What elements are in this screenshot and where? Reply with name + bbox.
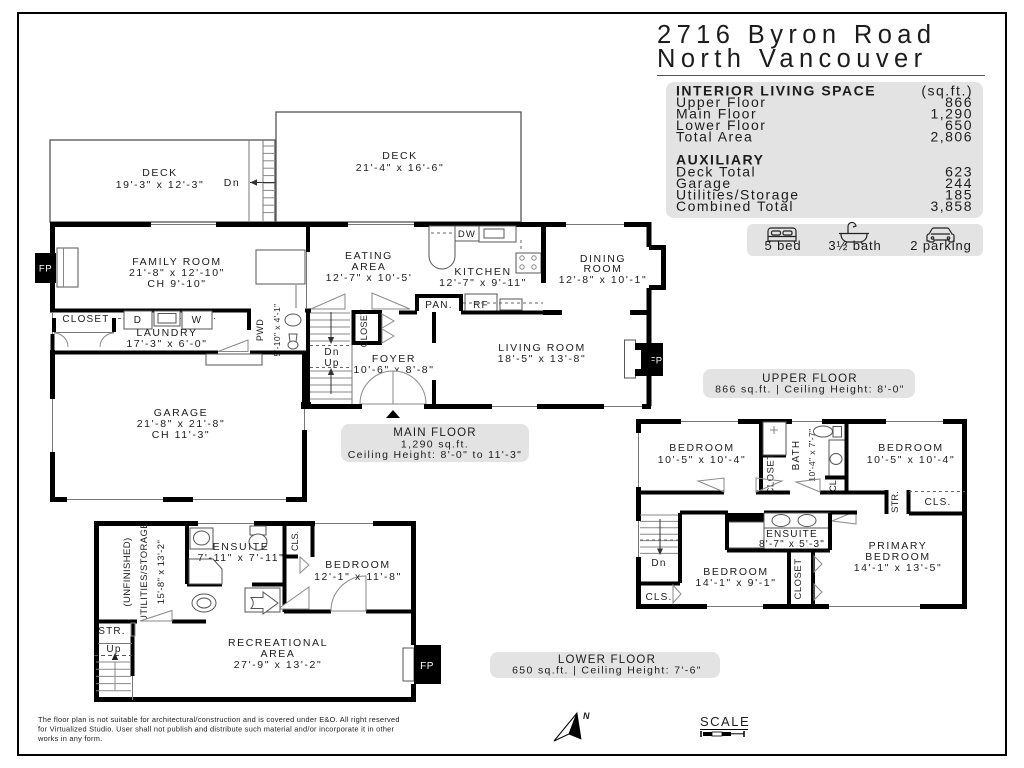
- svg-text:for Virtualized Studio. User s: for Virtualized Studio. User shall not p…: [38, 725, 395, 734]
- svg-text:12'-7" x 10'-5': 12'-7" x 10'-5': [326, 272, 413, 284]
- svg-text:The floor plan is not suitable: The floor plan is not suitable for archi…: [38, 715, 400, 724]
- svg-text:works in any form.: works in any form.: [37, 734, 102, 743]
- svg-text:CH 11'-3": CH 11'-3": [152, 429, 210, 441]
- svg-text:DW: DW: [458, 229, 476, 240]
- svg-text:866 sq.ft. | Ceiling Height: 8: 866 sq.ft. | Ceiling Height: 8'-0": [715, 384, 905, 396]
- svg-text:STR.: STR.: [98, 626, 126, 637]
- svg-text:STR.: STR.: [890, 491, 901, 513]
- svg-text:DECK: DECK: [382, 150, 418, 162]
- svg-text:DECK: DECK: [142, 167, 178, 179]
- svg-text:15'-8" x 13'-2": 15'-8" x 13'-2": [156, 540, 167, 604]
- svg-text:(UNFINISHED): (UNFINISHED): [122, 537, 133, 606]
- svg-text:RF: RF: [473, 300, 489, 311]
- svg-text:Total Area: Total Area: [676, 129, 753, 145]
- svg-text:3½ bath: 3½ bath: [828, 238, 881, 253]
- svg-text:10'-5" x 10'-4": 10'-5" x 10'-4": [867, 454, 956, 466]
- svg-text:BEDROOM: BEDROOM: [878, 442, 943, 454]
- svg-text:12'-8" x 10'-1": 12'-8" x 10'-1": [559, 274, 648, 286]
- svg-text:North Vancouver: North Vancouver: [657, 45, 927, 73]
- svg-text:Dn: Dn: [224, 177, 241, 189]
- svg-text:D: D: [134, 315, 142, 326]
- svg-text:18'-5" x 13'-8": 18'-5" x 13'-8": [498, 353, 587, 365]
- svg-text:FP: FP: [39, 264, 52, 275]
- svg-text:2,806: 2,806: [930, 129, 973, 145]
- svg-text:BEDROOM: BEDROOM: [325, 559, 390, 571]
- svg-text:CLOSET: CLOSET: [62, 314, 109, 325]
- svg-text:MAIN FLOOR: MAIN FLOOR: [393, 427, 477, 439]
- svg-text:12'-7" x 9'-11": 12'-7" x 9'-11": [439, 277, 527, 289]
- svg-text:FP: FP: [420, 661, 434, 672]
- svg-text:CL: CL: [828, 480, 838, 492]
- svg-text:21'-4" x 16'-6": 21'-4" x 16'-6": [356, 162, 445, 174]
- svg-text:SCALE: SCALE: [700, 714, 750, 729]
- svg-text:650 sq.ft. | Ceiling Height: 7: 650 sq.ft. | Ceiling Height: 7'-6": [512, 665, 702, 677]
- svg-text:Up: Up: [106, 644, 121, 655]
- svg-text:2 parking: 2 parking: [910, 238, 972, 253]
- svg-text:Dn: Dn: [651, 558, 666, 569]
- svg-text:8'-7" x 5'-3": 8'-7" x 5'-3": [759, 539, 825, 550]
- svg-text:Dn: Dn: [324, 347, 339, 358]
- svg-text:CLOSET: CLOSET: [766, 453, 777, 494]
- svg-text:14'-1" x 9'-1": 14'-1" x 9'-1": [695, 577, 776, 589]
- svg-text:12'-1" x 11'-8": 12'-1" x 11'-8": [314, 571, 402, 583]
- svg-text:Combined Total: Combined Total: [676, 198, 794, 214]
- svg-text:10'-5" x 10'-4": 10'-5" x 10'-4": [658, 454, 747, 466]
- svg-text:BATH: BATH: [791, 440, 802, 471]
- svg-text:N: N: [583, 711, 590, 721]
- svg-text:CLS.: CLS.: [290, 531, 300, 551]
- svg-text:27'-9" x 13'-2": 27'-9" x 13'-2": [234, 659, 323, 671]
- svg-text:W: W: [192, 315, 203, 326]
- svg-text:CLS.: CLS.: [645, 592, 672, 603]
- svg-text:Up: Up: [324, 358, 339, 369]
- svg-text:CH 9'-10": CH 9'-10": [147, 278, 206, 290]
- svg-text:UTILITIES/STORAGE: UTILITIES/STORAGE: [139, 522, 150, 622]
- svg-text:7'-11" x 7'-11": 7'-11" x 7'-11": [197, 552, 284, 564]
- svg-text:19'-3" x 12'-3": 19'-3" x 12'-3": [116, 179, 205, 191]
- svg-text:CLOSET: CLOSET: [359, 309, 369, 348]
- svg-text:5'-10" x 4'-1": 5'-10" x 4'-1": [272, 303, 282, 356]
- svg-text:CLOSET: CLOSET: [793, 558, 804, 599]
- svg-text:BEDROOM: BEDROOM: [669, 442, 734, 454]
- svg-text:3,858: 3,858: [930, 198, 973, 214]
- svg-text:PWD: PWD: [255, 319, 265, 341]
- svg-text:5 bed: 5 bed: [764, 238, 801, 253]
- svg-text:CLS.: CLS.: [924, 497, 951, 508]
- svg-text:10'-4" x 7'-7": 10'-4" x 7'-7": [807, 428, 817, 481]
- svg-text:PAN.: PAN.: [425, 300, 452, 311]
- svg-text:14'-1" x 13'-5": 14'-1" x 13'-5": [854, 562, 943, 574]
- svg-text:Ceiling Height: 8'-0" to 11'-3: Ceiling Height: 8'-0" to 11'-3": [348, 449, 523, 461]
- svg-text:17'-3" x 6'-0": 17'-3" x 6'-0": [126, 338, 207, 350]
